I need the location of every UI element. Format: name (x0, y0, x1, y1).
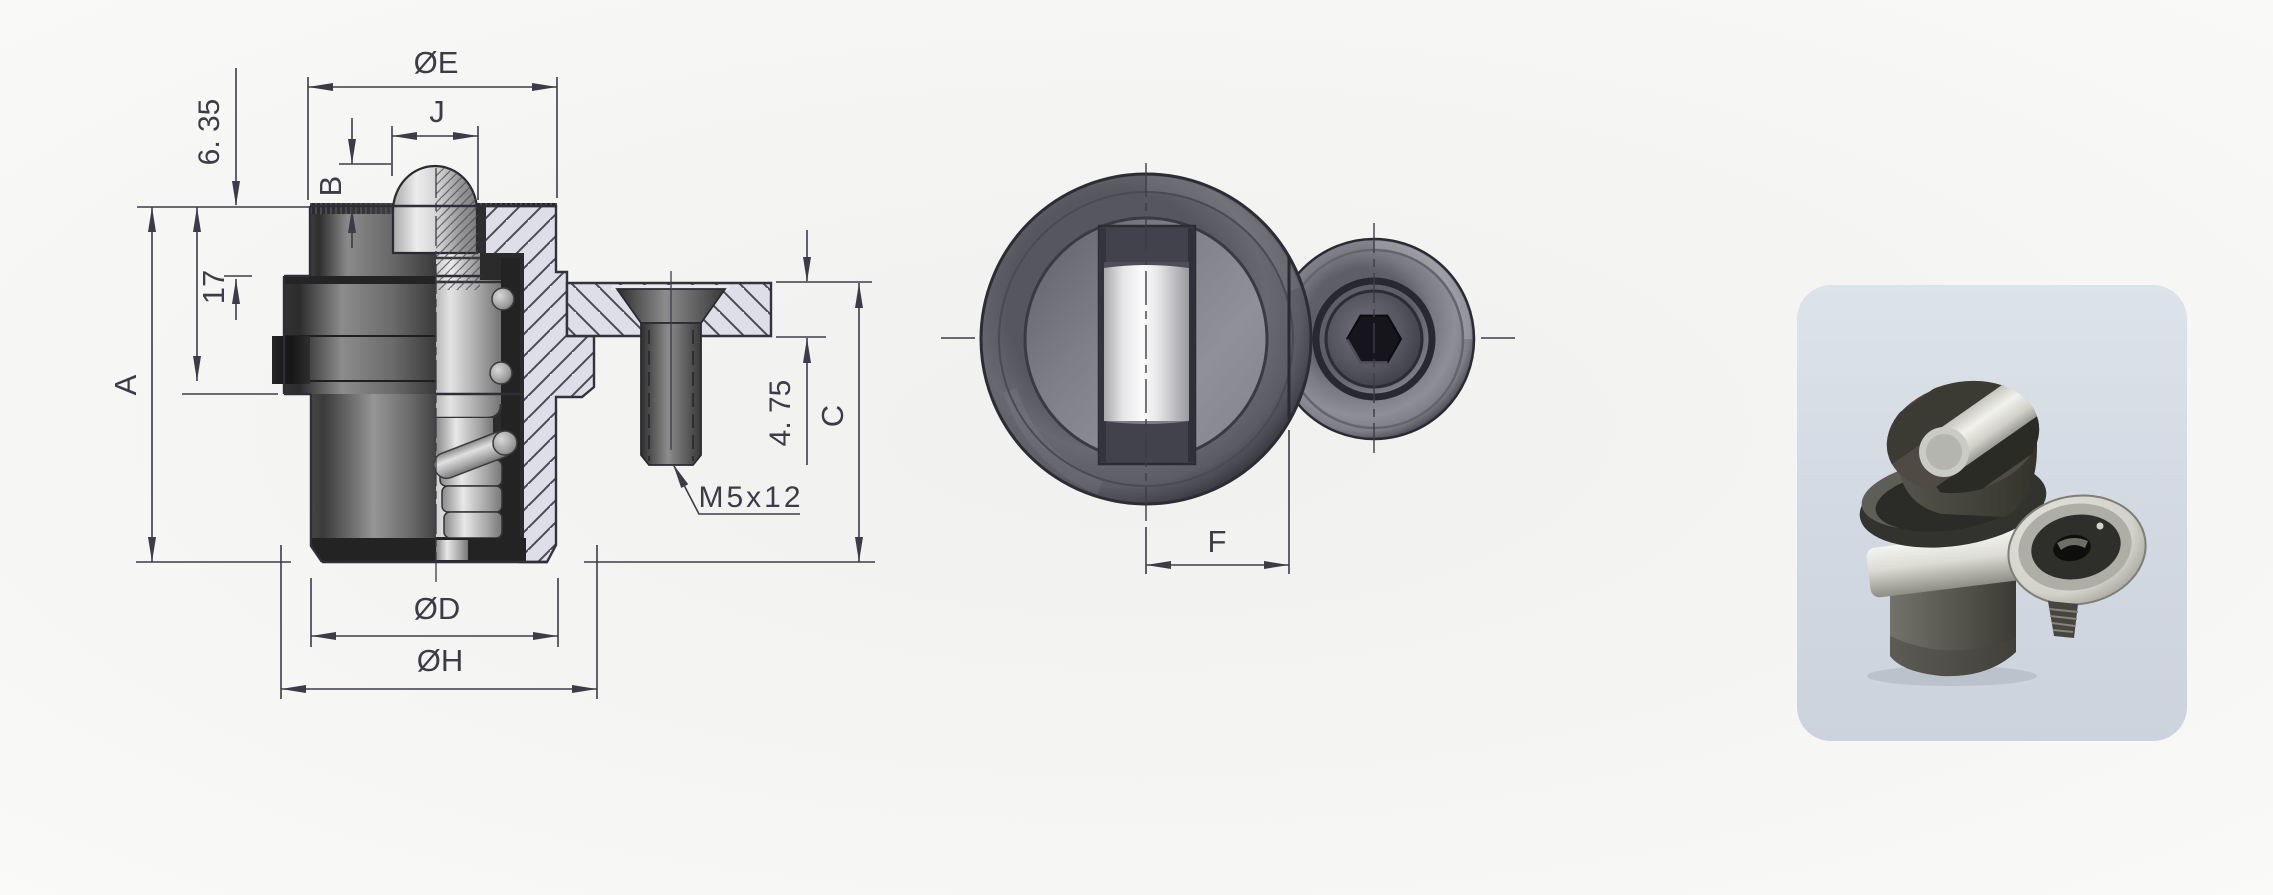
svg-text:ØE: ØE (414, 45, 459, 80)
svg-text:B: B (313, 176, 348, 197)
svg-text:17: 17 (196, 270, 231, 304)
svg-text:4. 75: 4. 75 (764, 380, 797, 447)
svg-text:A: A (108, 374, 143, 395)
svg-text:ØD: ØD (414, 591, 461, 626)
svg-text:6. 35: 6. 35 (193, 99, 226, 166)
svg-text:M5x12: M5x12 (698, 481, 803, 514)
svg-text:ØH: ØH (417, 643, 464, 678)
svg-text:C: C (815, 405, 850, 427)
svg-text:F: F (1208, 524, 1227, 559)
svg-text:J: J (429, 94, 445, 129)
